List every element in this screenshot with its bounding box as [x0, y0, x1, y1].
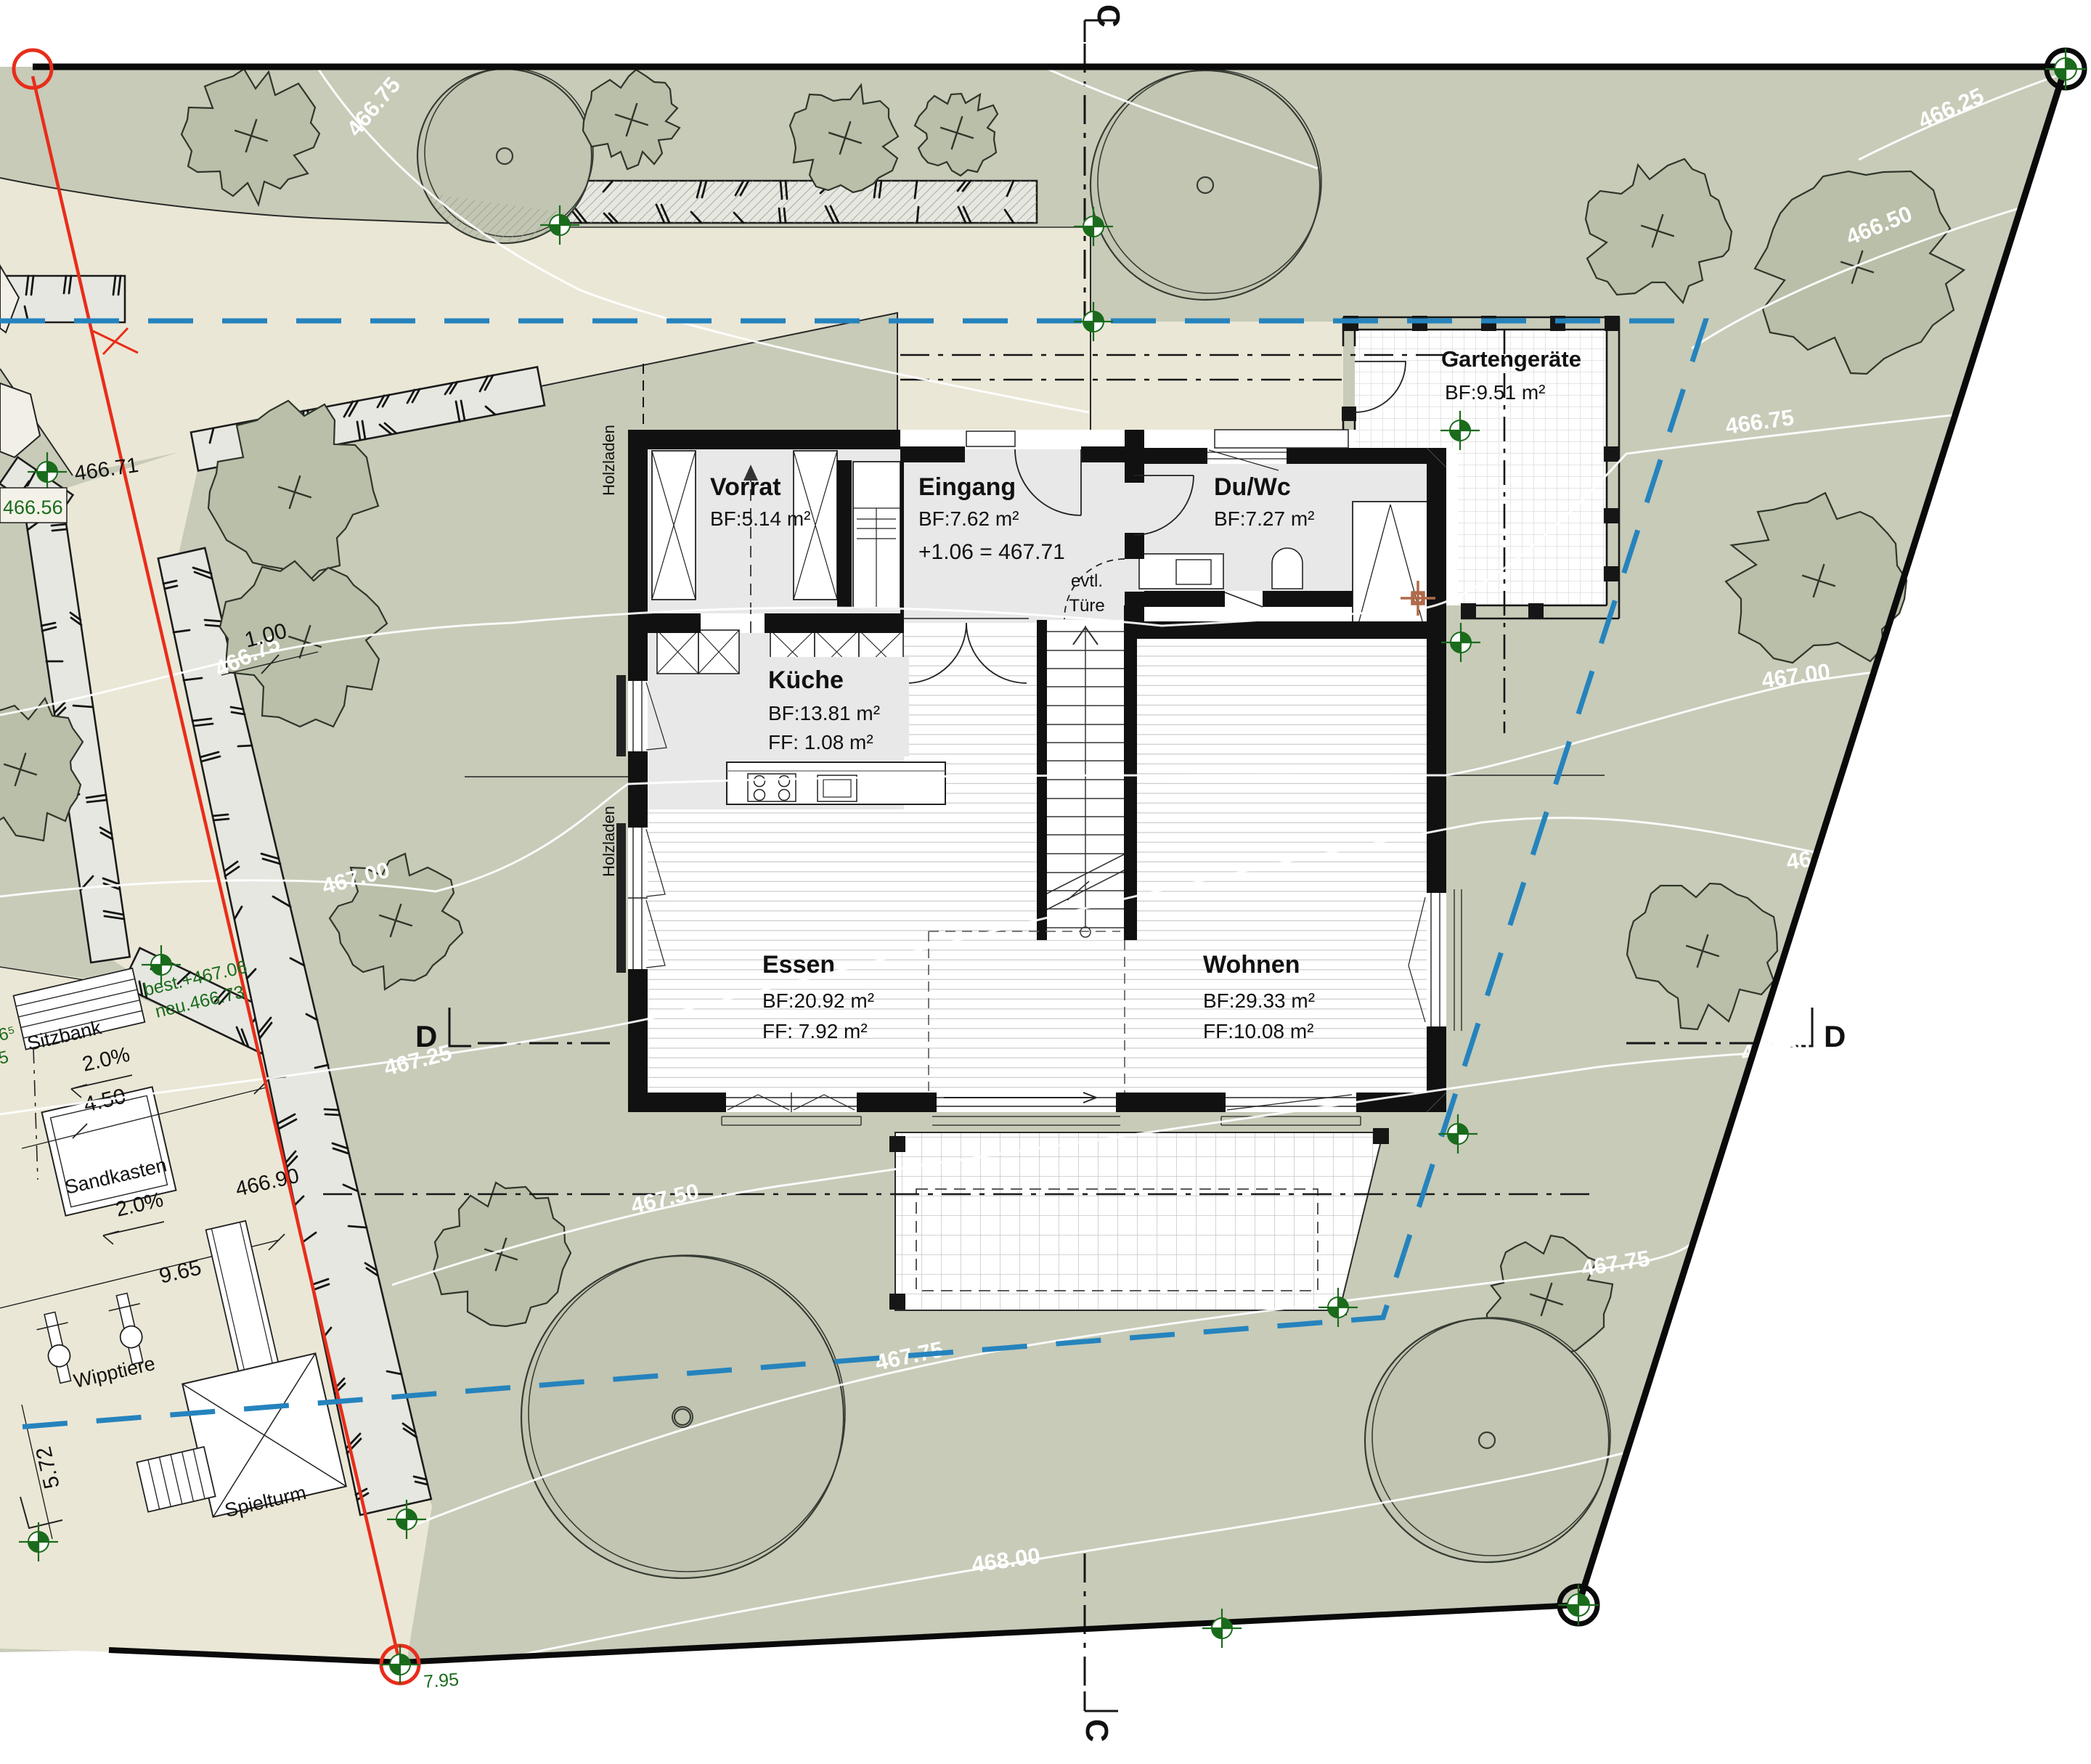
svg-text:Gartengeräte: Gartengeräte — [1441, 346, 1581, 372]
svg-text:BF:5.14 m²: BF:5.14 m² — [710, 507, 810, 530]
svg-text:Du/Wc: Du/Wc — [1214, 473, 1291, 501]
svg-text:Wohnen: Wohnen — [1203, 951, 1300, 979]
svg-text:Vorrat: Vorrat — [710, 473, 781, 501]
svg-text:C: C — [1091, 4, 1126, 28]
svg-text:Eingang: Eingang — [918, 473, 1016, 501]
svg-text:7.95: 7.95 — [423, 1670, 460, 1692]
svg-text:C: C — [1079, 1719, 1114, 1742]
svg-text:466.56: 466.56 — [3, 497, 63, 518]
svg-text:BF:9.51 m²: BF:9.51 m² — [1445, 381, 1545, 404]
svg-text:Türe: Türe — [1069, 596, 1104, 616]
svg-text:FF:10.08 m²: FF:10.08 m² — [1203, 1020, 1313, 1042]
svg-text:Holzladen: Holzladen — [600, 425, 618, 496]
svg-text:BF:7.62 m²: BF:7.62 m² — [918, 507, 1019, 530]
svg-text:BF:20.92 m²: BF:20.92 m² — [762, 989, 874, 1012]
svg-text:FF: 1.08 m²: FF: 1.08 m² — [768, 731, 873, 754]
svg-text:Küche: Küche — [768, 666, 844, 694]
svg-text:BF:7.27 m²: BF:7.27 m² — [1214, 507, 1314, 530]
svg-text:BF:29.33 m²: BF:29.33 m² — [1203, 989, 1315, 1012]
svg-text:evtl.: evtl. — [1071, 571, 1103, 591]
svg-text:Holzladen: Holzladen — [600, 806, 618, 877]
svg-text:BF:13.81 m²: BF:13.81 m² — [768, 702, 880, 724]
svg-text:FF: 7.92 m²: FF: 7.92 m² — [762, 1020, 868, 1042]
svg-text:+1.06 = 467.71: +1.06 = 467.71 — [918, 540, 1065, 564]
